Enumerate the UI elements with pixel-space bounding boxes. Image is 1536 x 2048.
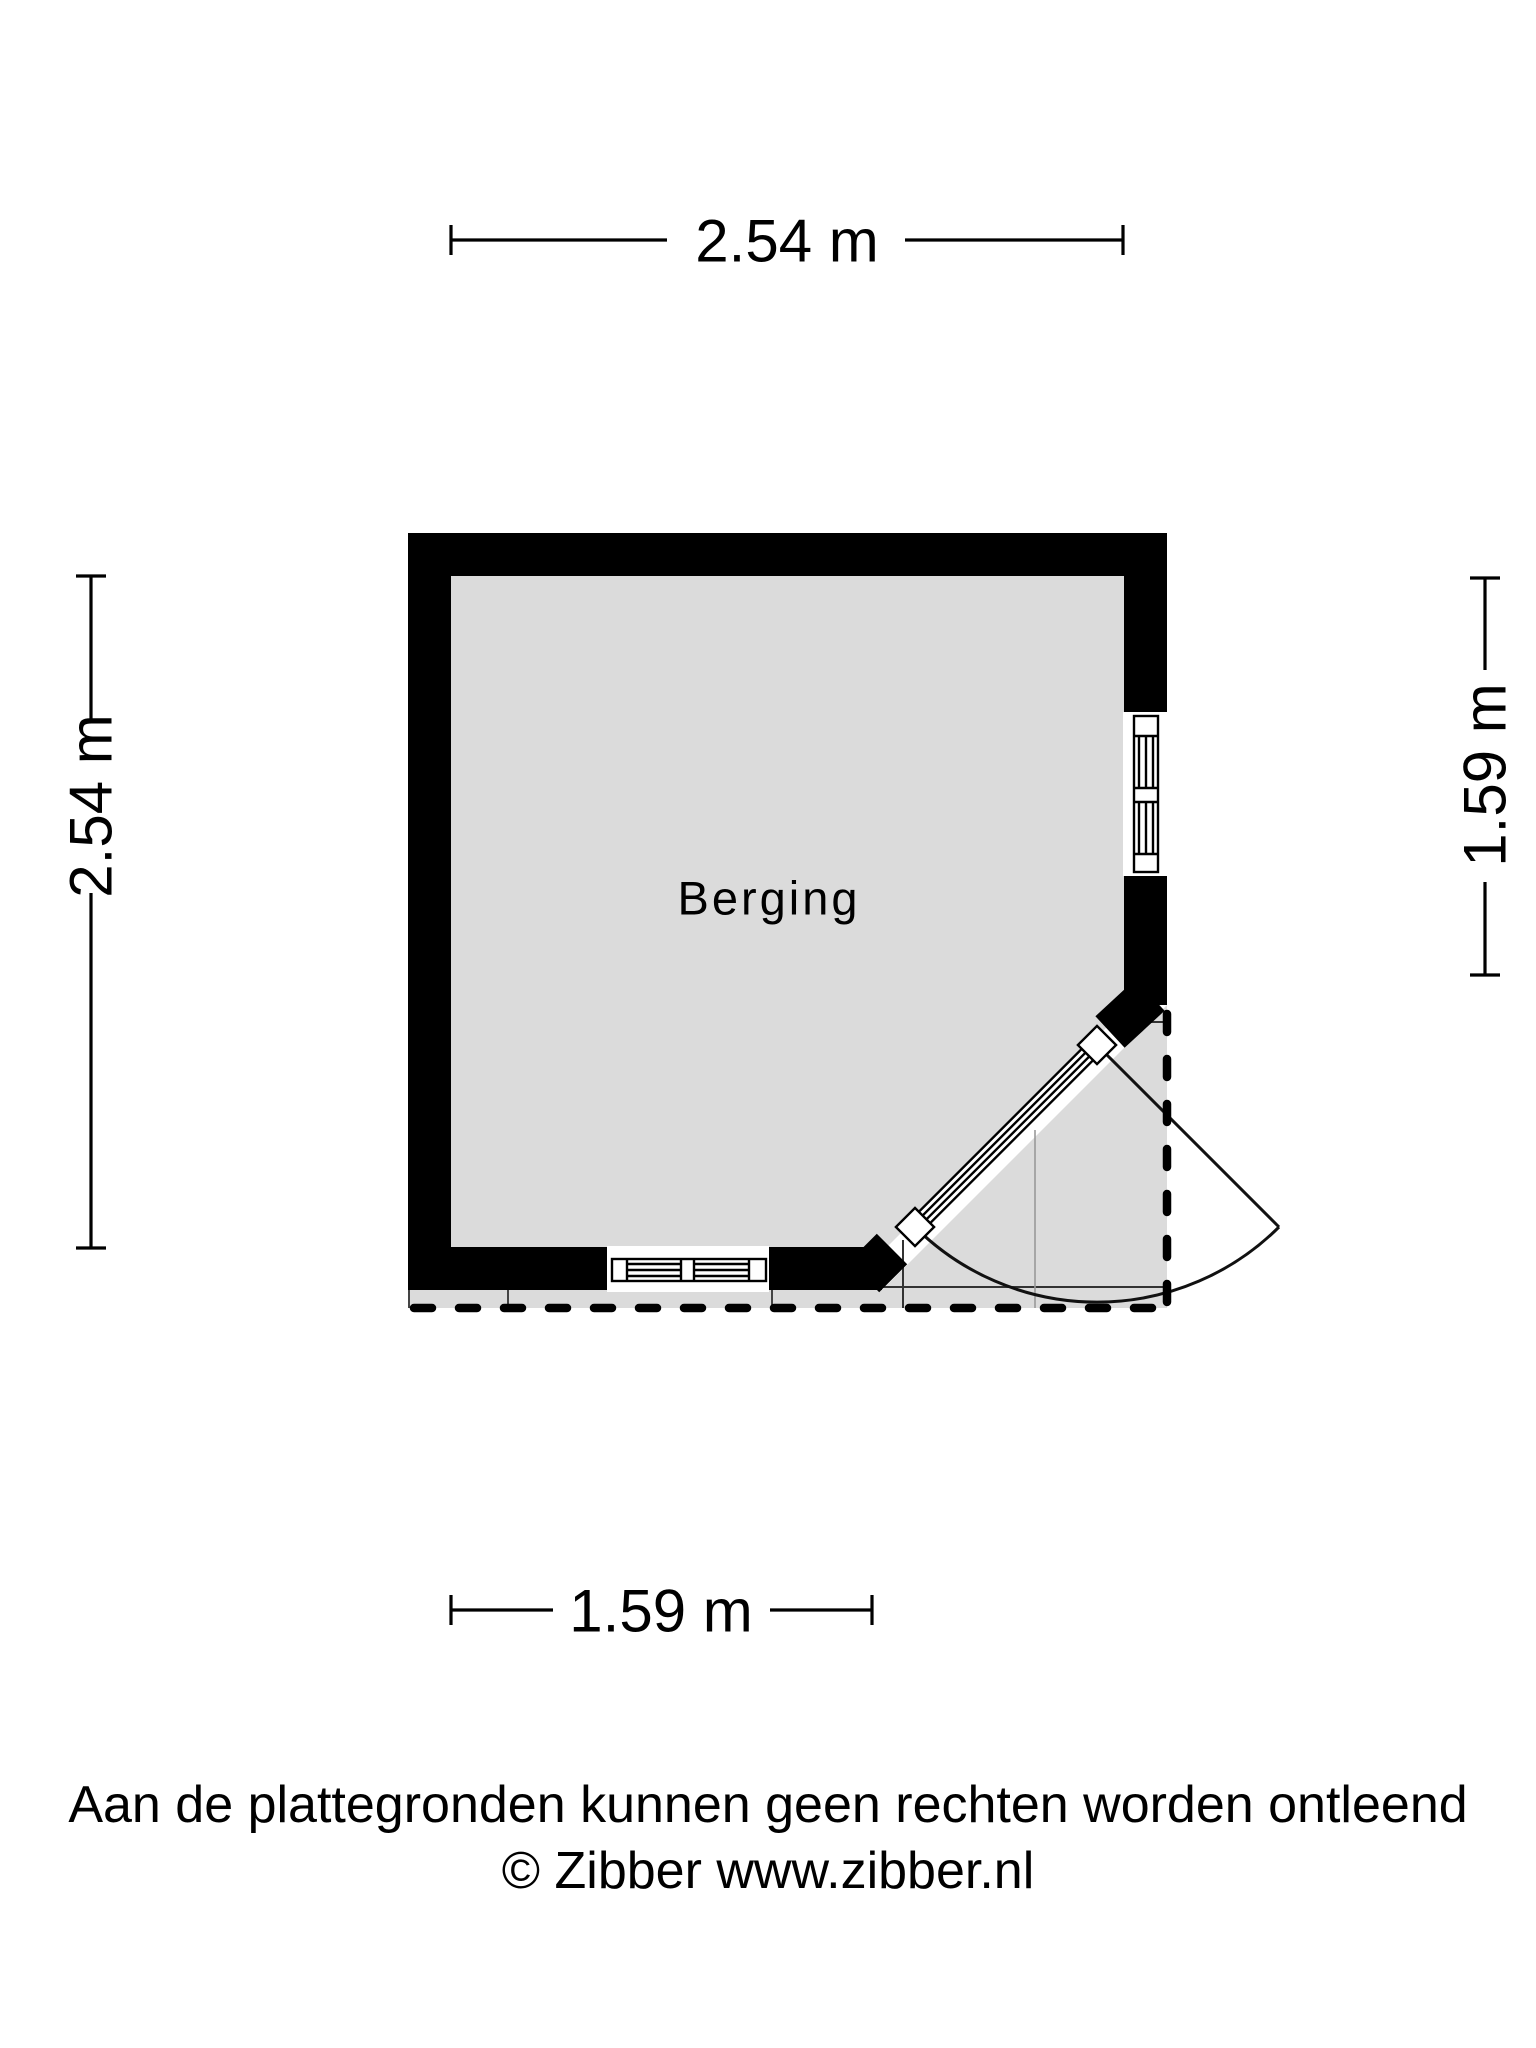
dimension-line-left bbox=[76, 576, 106, 1248]
wall-left bbox=[408, 533, 451, 1290]
footer-copyright: © Zibber www.zibber.nl bbox=[0, 1838, 1536, 1904]
dimension-label-left-height: 2.54 m bbox=[57, 714, 126, 897]
wall-top bbox=[408, 533, 1167, 576]
chamfer-wall-upper bbox=[1110, 995, 1150, 1032]
dimension-label-right-height: 1.59 m bbox=[1451, 683, 1520, 866]
footer: Aan de plattegronden kunnen geen rechten… bbox=[0, 1772, 1536, 1904]
floorplan-drawing bbox=[0, 0, 1536, 2048]
floorplan-page: 2.54 m 2.54 m 1.59 m 1.59 m Berging Aan … bbox=[0, 0, 1536, 2048]
wall-bottom-left bbox=[408, 1247, 608, 1290]
wall-right-upper bbox=[1124, 533, 1167, 713]
window-right-glyph bbox=[1134, 716, 1158, 872]
chamfer-wall-lower bbox=[864, 1249, 892, 1277]
window-bottom-glyph bbox=[612, 1259, 766, 1281]
dimension-label-top-width: 2.54 m bbox=[695, 207, 878, 276]
footer-disclaimer: Aan de plattegronden kunnen geen rechten… bbox=[0, 1772, 1536, 1838]
dimension-label-bottom-width: 1.59 m bbox=[569, 1577, 752, 1646]
room-label: Berging bbox=[678, 871, 861, 926]
